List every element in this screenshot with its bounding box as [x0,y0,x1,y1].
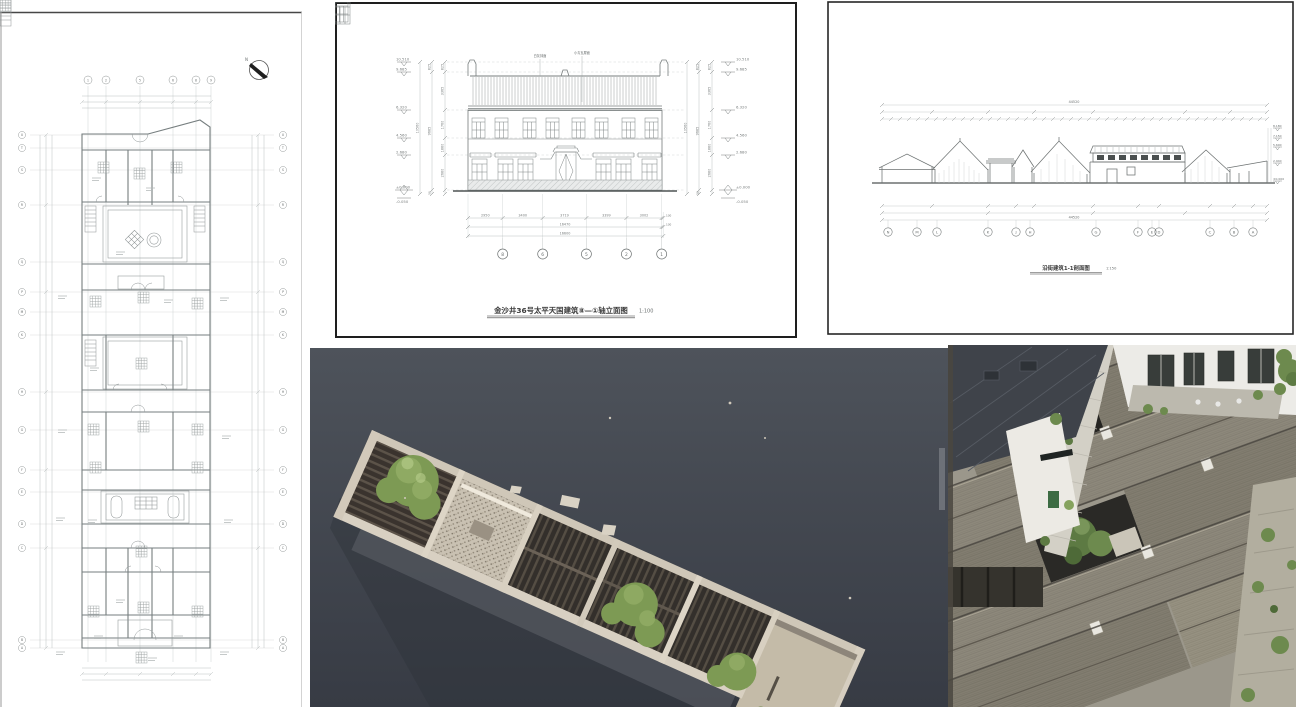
svg-text:P: P [21,290,23,294]
svg-text:8: 8 [195,78,197,82]
elevation-caption: 金沙井36号太平天国建筑⑧—①轴立面图 1:100 [487,306,653,318]
svg-text:3002: 3002 [640,214,649,218]
svg-text:M: M [282,310,285,314]
svg-text:8: 8 [501,252,504,258]
north-arrow-icon: N [245,57,269,80]
aerial-photo [948,345,1296,707]
level-markers-right: 10.510 9.685 6.320 4.560 2.680 ±0.000 -0… [719,57,751,204]
svg-text:825: 825 [428,64,432,70]
svg-text:9.685: 9.685 [736,67,747,72]
section-axis-bubbles: NM LK JH GF ED CB A [884,220,1257,236]
svg-text:10560: 10560 [684,123,688,134]
svg-text:白灰抹面: 白灰抹面 [534,53,547,58]
svg-text:N: N [245,57,248,62]
svg-text:50: 50 [696,191,700,195]
section-level-markers: 8.180 7.150 5.600 2.940 ±0.000 [1268,124,1284,184]
level-markers-left: 10.510 9.685 6.320 4.560 2.680 ±0.000 -0… [395,57,413,204]
svg-text:T: T [281,146,284,150]
svg-text:小青瓦屋面: 小青瓦屋面 [574,50,590,55]
svg-text:P: P [282,290,284,294]
svg-text:G: G [1095,229,1098,234]
svg-text:16470: 16470 [560,223,571,227]
svg-text:C: C [21,546,23,550]
section-caption: 沿街建筑1-1剖面图 1:150 [1030,264,1117,274]
svg-text:M: M [915,229,918,234]
svg-text:C: C [282,546,284,550]
svg-text:±0.000: ±0.000 [1273,177,1284,181]
svg-text:N: N [887,229,890,234]
white-building [1113,345,1296,419]
svg-text:C: C [1209,229,1212,234]
svg-text:8.180: 8.180 [1273,124,1282,128]
svg-text:A: A [1252,229,1255,234]
svg-text:M: M [21,310,24,314]
svg-text:16600: 16600 [560,232,571,236]
elevation-sheet: 白灰抹面 小青瓦屋面 10.510 9.685 6.320 4.560 2.68… [335,2,797,338]
svg-text:B: B [21,638,23,642]
svg-text:9685: 9685 [428,127,432,136]
svg-text:F: F [21,468,23,472]
svg-text:4.560: 4.560 [736,133,747,138]
svg-text:6: 6 [541,252,544,258]
svg-text:S: S [282,168,284,172]
svg-text:2.940: 2.940 [1273,159,1282,163]
svg-text:2.680: 2.680 [396,150,407,155]
svg-text:2: 2 [105,78,107,82]
plinth [468,180,662,190]
svg-text:3400: 3400 [518,214,527,218]
svg-text:H: H [1029,229,1032,234]
section-scale: 1:150 [1106,267,1117,271]
bottom-dims: 2950 3400 3719 3399 3002 130 16470 130 1… [466,194,672,238]
svg-text:1: 1 [660,252,663,258]
svg-text:825: 825 [696,64,700,70]
svg-text:T: T [20,146,23,150]
svg-text:B: B [1233,229,1236,234]
svg-text:K: K [987,229,990,234]
section-top-dims: 44520 [880,100,1269,121]
svg-text:5: 5 [585,252,588,258]
svg-text:10560: 10560 [416,123,420,134]
svg-text:E: E [21,490,23,494]
svg-text:44520: 44520 [1069,216,1080,220]
plan-courtyards [101,206,189,646]
corridor [948,567,1043,607]
svg-text:B: B [282,638,284,642]
floor-plan-sheet: N 1 2 5 6 8 9 [0,0,303,707]
svg-text:1880: 1880 [708,144,712,153]
plan-walls [82,120,210,648]
svg-text:4.560: 4.560 [396,133,407,138]
svg-text:L: L [936,229,939,234]
svg-text:130: 130 [666,214,672,218]
section-bottom-dims: 44520 [880,204,1269,222]
svg-text:10.510: 10.510 [396,57,410,62]
svg-text:9685: 9685 [696,127,700,136]
svg-text:9.685: 9.685 [396,67,407,72]
svg-text:D: D [1158,229,1161,234]
svg-text:3365: 3365 [441,87,445,96]
photo-edge-shadow [948,345,953,707]
svg-text:6.320: 6.320 [396,105,407,110]
axis-bubbles-top: 1 2 5 6 8 9 [84,76,215,84]
sheet-frame [828,2,1293,334]
svg-text:2: 2 [625,252,628,258]
svg-text:2680: 2680 [708,169,712,178]
svg-text:130: 130 [666,223,672,227]
svg-text:J: J [1014,229,1016,234]
elevation-scale: 1:100 [639,309,653,315]
svg-text:1: 1 [87,78,89,82]
svg-text:1880: 1880 [441,144,445,153]
svg-text:E: E [1151,229,1154,234]
svg-text:825: 825 [708,64,712,70]
svg-text:10.510: 10.510 [736,57,750,62]
svg-text:1760: 1760 [441,121,445,130]
svg-text:金沙井36号太平天国建筑⑧—①轴立面图: 金沙井36号太平天国建筑⑧—①轴立面图 [493,306,628,315]
svg-text:F: F [1137,229,1139,234]
svg-text:U: U [21,133,23,137]
svg-text:2680: 2680 [441,169,445,178]
section-drawing [872,137,1275,183]
svg-text:E: E [282,490,284,494]
svg-text:±0.000: ±0.000 [736,185,751,190]
elevation-axis-bubbles: 8 6 5 2 1 [498,238,667,259]
svg-text:-0.050: -0.050 [396,199,409,204]
svg-text:-0.050: -0.050 [736,199,749,204]
svg-text:U: U [282,133,284,137]
upper-windows [335,2,658,138]
svg-text:F: F [282,468,284,472]
svg-text:6.320: 6.320 [736,105,747,110]
svg-text:6: 6 [172,78,174,82]
svg-text:825: 825 [441,64,445,70]
edge-artifact [939,448,945,510]
svg-text:沿街建筑1-1剖面图: 沿街建筑1-1剖面图 [1042,264,1090,272]
svg-text:2950: 2950 [481,214,490,218]
svg-text:3399: 3399 [602,214,611,218]
svg-text:7.150: 7.150 [1273,134,1282,138]
svg-text:5: 5 [139,78,141,82]
canopies [470,146,661,159]
svg-text:1760: 1760 [708,121,712,130]
section-sheet: 44520 [827,1,1294,335]
svg-text:50: 50 [428,191,432,195]
lower-windows [335,2,657,190]
plan-stairs [0,0,205,366]
point-cloud-viewport[interactable] [310,348,948,707]
svg-text:9: 9 [210,78,212,82]
elevation-building [335,2,677,191]
vertical-dims-right: 825 3365 1760 1880 2680 825 9685 10560 5… [684,60,715,196]
vertical-dims-left: 825 3365 1760 1880 2680 825 9685 10560 5… [416,60,448,196]
svg-text:S: S [21,168,23,172]
svg-text:3719: 3719 [560,214,569,218]
svg-text:±0.000: ±0.000 [396,185,411,190]
svg-text:3365: 3365 [708,87,712,96]
svg-text:44520: 44520 [1069,100,1080,104]
svg-text:2.680: 2.680 [736,150,747,155]
svg-text:5.600: 5.600 [1273,143,1282,147]
